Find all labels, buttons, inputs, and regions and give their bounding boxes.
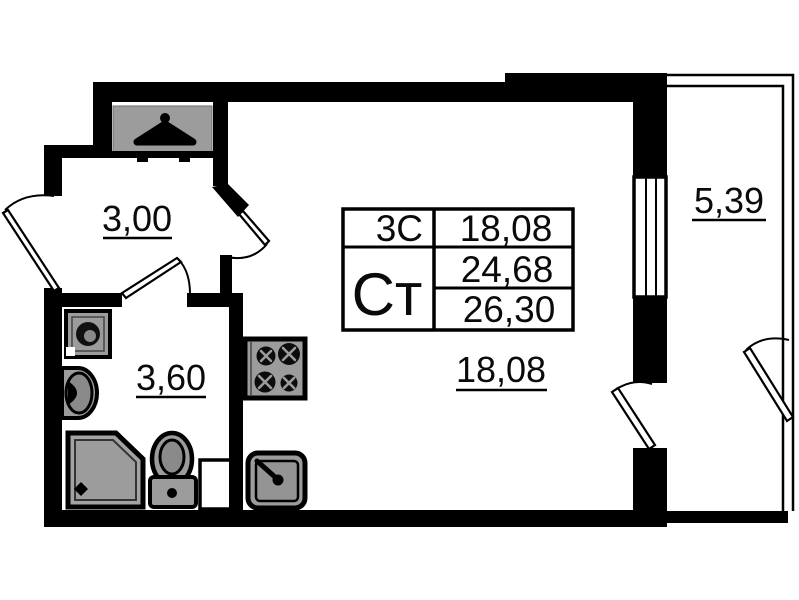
- living-area-label: 18,08: [456, 349, 546, 390]
- wall-hall-jamb: [220, 255, 232, 297]
- balcony-outer-line: [667, 75, 793, 511]
- hall-room-door: [227, 211, 269, 258]
- stamp-area-total: 24,68: [461, 249, 554, 290]
- wall-pier-top: [633, 73, 667, 177]
- wardrobe-front: [112, 151, 213, 158]
- balcony-area-label: 5,39: [694, 180, 764, 221]
- stamp-living-area: 18,08: [460, 208, 553, 249]
- wall-bath-top-left: [44, 293, 122, 307]
- floor-plan-svg: 3С 18,08 Ст 24,68 26,30 3,00 3,60 18,08 …: [0, 0, 799, 600]
- shower-tray-icon: [68, 433, 143, 507]
- wardrobe: [112, 106, 213, 162]
- entrance-door: [3, 195, 59, 291]
- stamp-area-with-balcony: 26,30: [463, 289, 556, 330]
- wardrobe-foot: [179, 158, 190, 162]
- window-living-balcony: [634, 177, 666, 297]
- kitchen-sink-icon: [248, 453, 305, 508]
- bathroom-sink-icon: [62, 368, 97, 418]
- wall-wardrobe-left: [93, 82, 112, 158]
- stove-icon: [245, 339, 305, 398]
- stamp-rooms-code: 3С: [376, 208, 423, 249]
- floor-plan: 3С 18,08 Ст 24,68 26,30 3,00 3,60 18,08 …: [0, 0, 799, 600]
- balcony-inner-line: [667, 86, 783, 511]
- wall-bottom: [44, 510, 667, 527]
- wall-left: [44, 288, 62, 527]
- wall-hall-right: [213, 102, 228, 186]
- wall-balcony-bottom: [667, 511, 788, 523]
- stamp-type-code: Ст: [352, 261, 423, 328]
- wall-pier-bottom: [633, 448, 667, 527]
- washing-machine-icon: [66, 311, 110, 357]
- balcony-window-sash: [744, 338, 793, 421]
- wall-bath-right: [229, 293, 243, 510]
- wall-step-v: [44, 145, 62, 196]
- wall-pier-mid: [633, 297, 667, 383]
- fixtures: [62, 106, 305, 509]
- vent-shaft: [200, 460, 233, 509]
- bathroom-door: [122, 258, 190, 298]
- toilet-icon: [150, 433, 196, 507]
- wardrobe-foot: [137, 158, 148, 162]
- balcony-door: [612, 382, 655, 449]
- bathroom-area-label: 3,60: [136, 357, 206, 398]
- hallway-area-label: 3,00: [102, 198, 172, 239]
- balcony-outline: [667, 75, 793, 511]
- area-stamp: 3С 18,08 Ст 24,68 26,30: [343, 208, 573, 330]
- wall-top-left: [93, 82, 505, 102]
